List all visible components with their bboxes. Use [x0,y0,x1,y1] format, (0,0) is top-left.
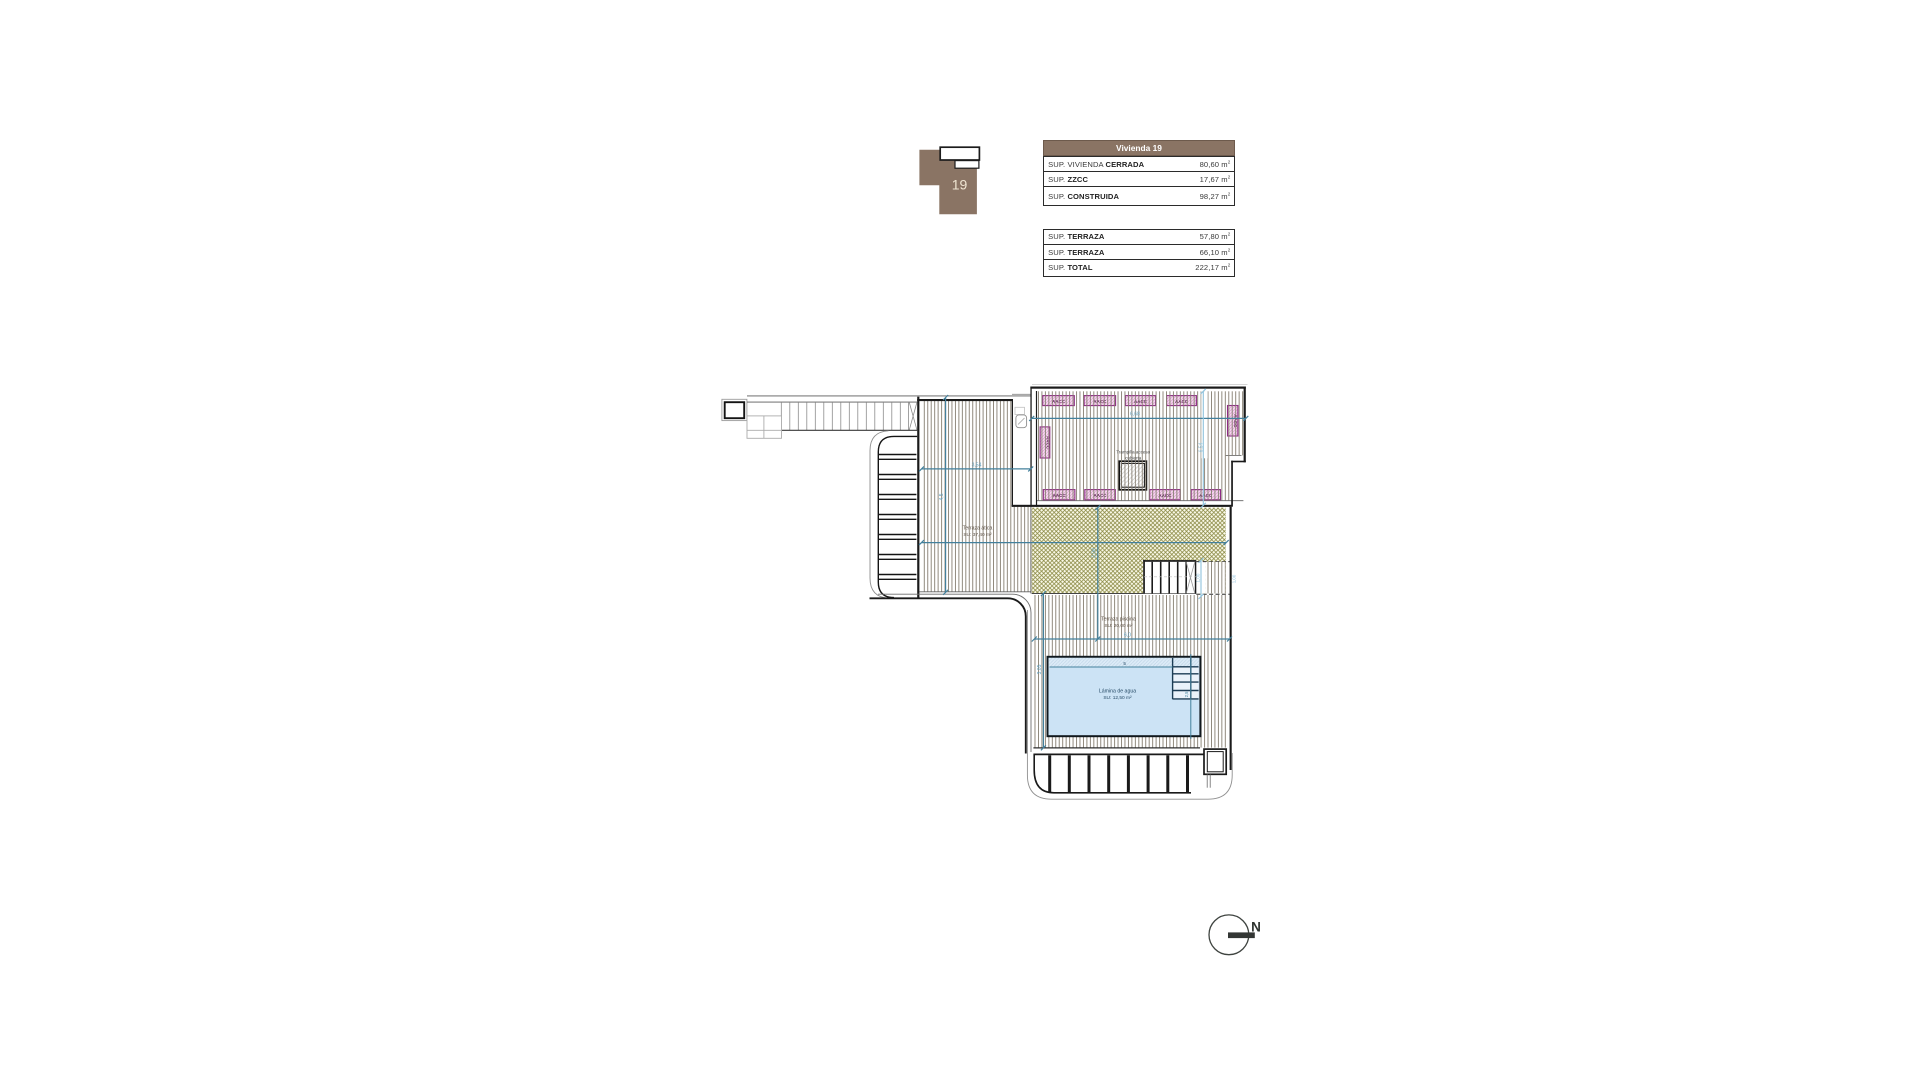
svg-text:SU: 37,40 m²: SU: 37,40 m² [963,532,992,538]
svg-text:Terraza piscina: Terraza piscina [1101,617,1136,623]
svg-text:Trampilla acceso: Trampilla acceso [1116,449,1150,454]
svg-text:5: 5 [1123,661,1126,666]
svg-text:4,5: 4,5 [939,493,945,500]
svg-text:6,68: 6,68 [1130,412,1140,418]
svg-text:cubierta: cubierta [1125,455,1142,460]
svg-text:19: 19 [952,177,968,193]
svg-text:2,5: 2,5 [1184,691,1189,697]
svg-text:2,08: 2,08 [1092,548,1098,558]
svg-text:3,05: 3,05 [1037,664,1043,674]
svg-text:6,0: 6,0 [1124,632,1131,638]
svg-text:3,54: 3,54 [972,462,982,468]
svg-text:SU: 20,00 m²: SU: 20,00 m² [1104,623,1133,629]
svg-text:Lámina de agua: Lámina de agua [1099,689,1136,695]
svg-text:6,54: 6,54 [1199,442,1205,452]
svg-text:SU: 12,50 m²: SU: 12,50 m² [1103,695,1132,701]
svg-text:1,00: 1,00 [1232,574,1237,583]
svg-text:N: N [1251,920,1261,935]
svg-text:1,00: 1,00 [1195,573,1200,582]
svg-text:Terraza ática: Terraza ática [963,526,993,532]
